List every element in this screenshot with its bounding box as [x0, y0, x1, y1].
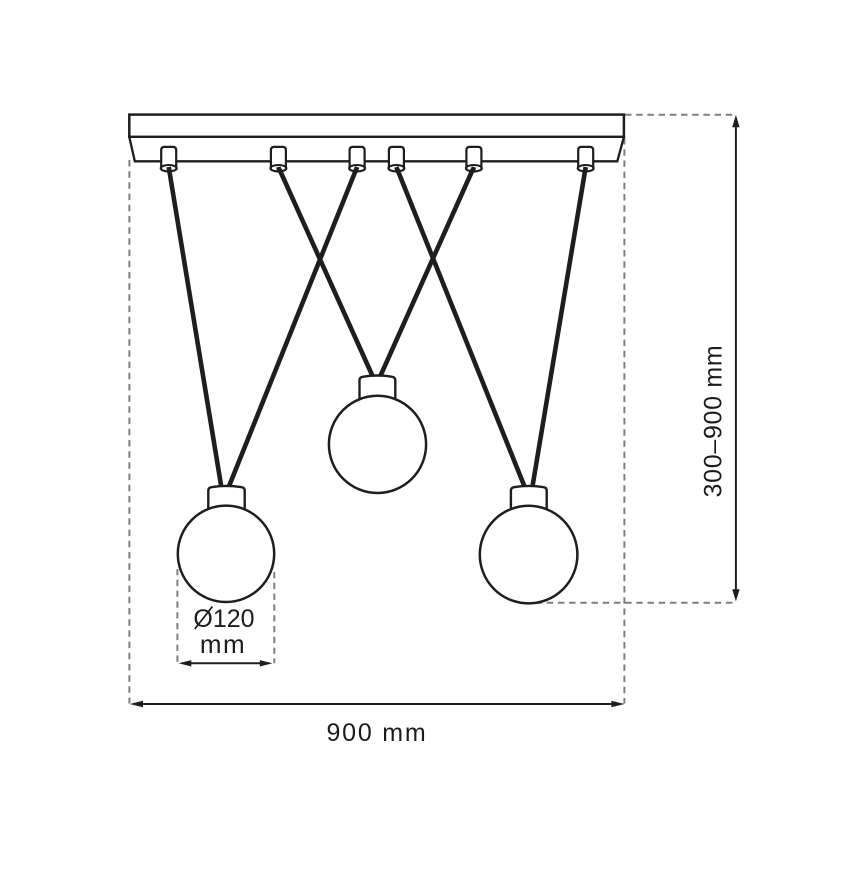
svg-text:300–900 mm: 300–900 mm	[699, 345, 727, 498]
svg-text:mm: mm	[200, 629, 246, 659]
svg-text:900 mm: 900 mm	[326, 719, 427, 747]
